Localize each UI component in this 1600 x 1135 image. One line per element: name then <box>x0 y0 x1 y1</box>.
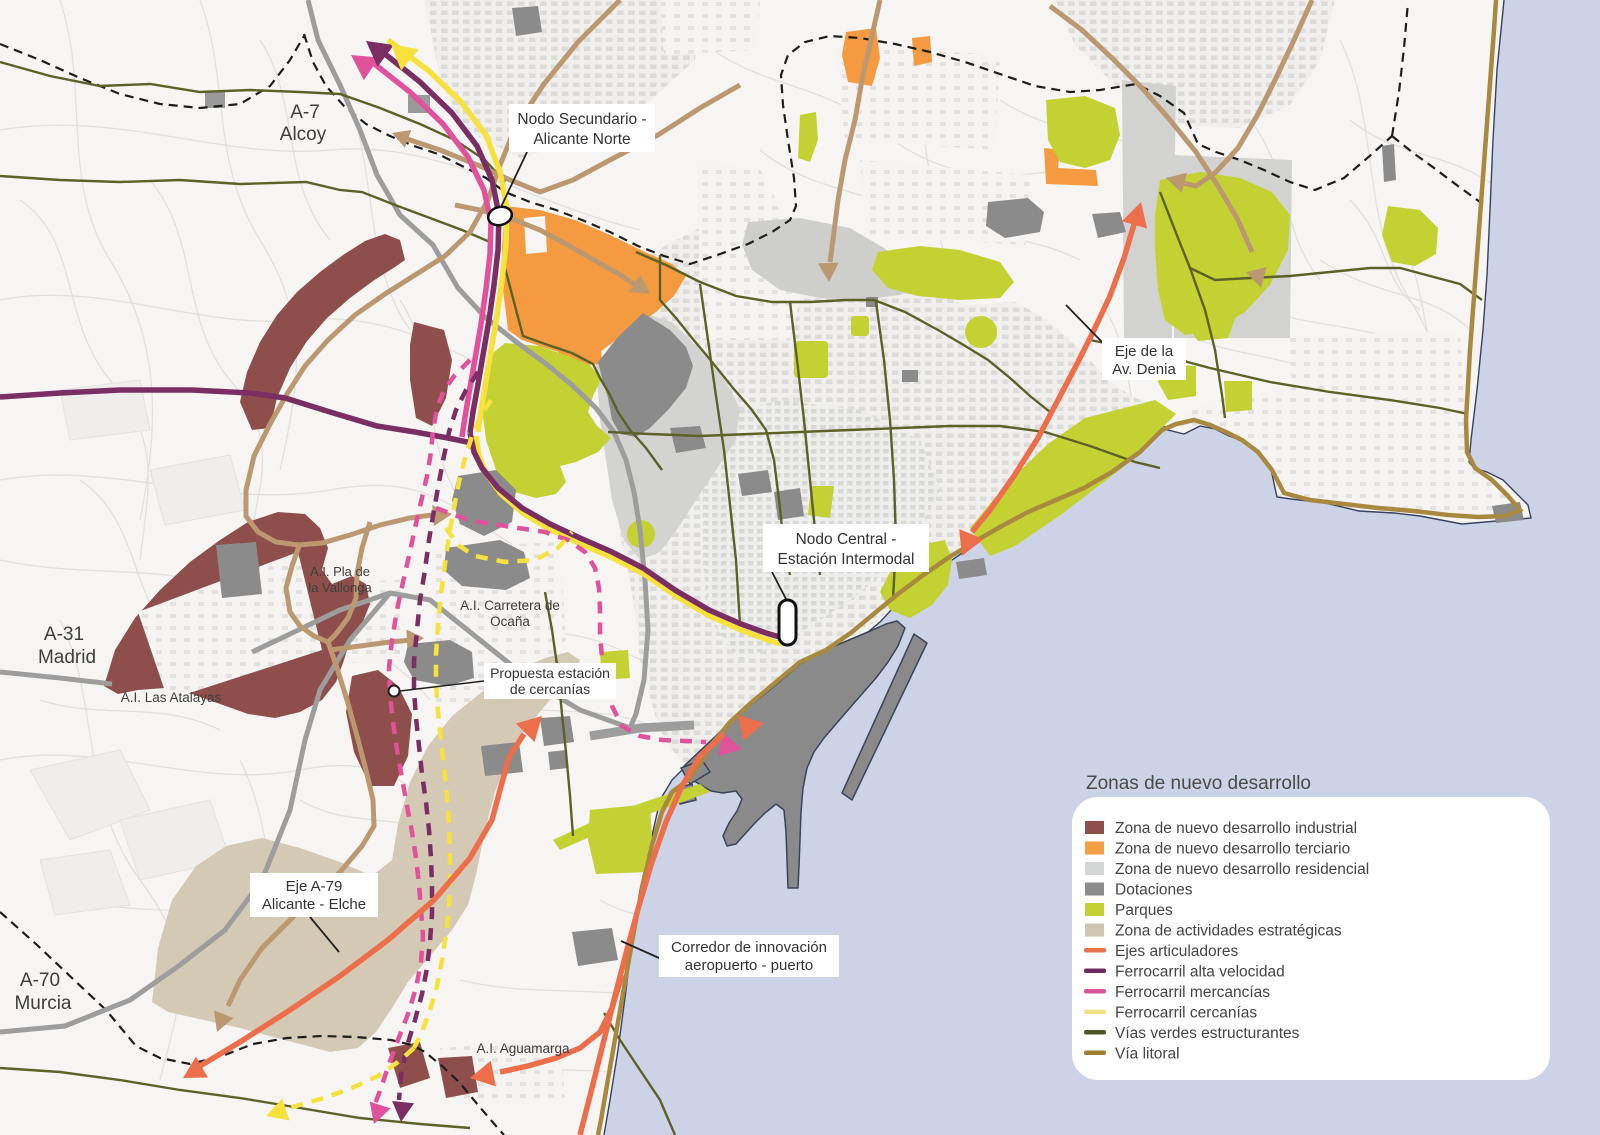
svg-text:A.I. Aguamarga: A.I. Aguamarga <box>476 1041 570 1056</box>
svg-text:Zona de actividades estratégic: Zona de actividades estratégicas <box>1115 923 1342 940</box>
svg-text:Nodo Secundario -: Nodo Secundario - <box>517 111 646 128</box>
svg-text:Ferrocarril mercancías: Ferrocarril mercancías <box>1115 984 1270 1001</box>
svg-text:Ejes articuladores: Ejes articuladores <box>1115 943 1238 960</box>
svg-text:Nodo Central -: Nodo Central - <box>796 531 897 548</box>
svg-text:la Vallonga: la Vallonga <box>308 580 372 595</box>
svg-text:Alicante - Elche: Alicante - Elche <box>262 896 366 913</box>
svg-text:Vía litoral: Vía litoral <box>1115 1046 1180 1063</box>
svg-text:Propuesta estación: Propuesta estación <box>490 665 610 681</box>
svg-text:aeropuerto - puerto: aeropuerto - puerto <box>685 957 813 974</box>
svg-text:Alicante Norte: Alicante Norte <box>533 131 630 148</box>
svg-text:Corredor de innovación: Corredor de innovación <box>671 939 827 956</box>
svg-text:Zona de nuevo desarrollo terci: Zona de nuevo desarrollo terciario <box>1115 841 1350 858</box>
svg-text:Eje A-79: Eje A-79 <box>286 878 343 895</box>
svg-text:A-7: A-7 <box>290 102 320 123</box>
svg-text:A.I. Carretera de: A.I. Carretera de <box>460 598 560 613</box>
svg-text:de cercanías: de cercanías <box>510 681 590 697</box>
svg-text:A-31: A-31 <box>44 624 84 645</box>
svg-text:Ocaña: Ocaña <box>490 614 530 629</box>
svg-text:Zona de nuevo desarrollo indus: Zona de nuevo desarrollo industrial <box>1115 820 1357 837</box>
svg-text:Vías verdes estructurantes: Vías verdes estructurantes <box>1115 1025 1300 1042</box>
svg-text:Parques: Parques <box>1115 902 1173 919</box>
svg-text:Eje de la: Eje de la <box>1115 343 1174 360</box>
svg-text:Murcia: Murcia <box>14 993 71 1014</box>
svg-text:Ferrocarril cercanías: Ferrocarril cercanías <box>1115 1005 1257 1022</box>
svg-text:Ferrocarril alta velocidad: Ferrocarril alta velocidad <box>1115 964 1285 981</box>
svg-text:Zona de nuevo desarrollo resid: Zona de nuevo desarrollo residencial <box>1115 861 1369 878</box>
svg-text:A.I. Las Atalayas: A.I. Las Atalayas <box>121 690 222 705</box>
svg-text:A-70: A-70 <box>20 970 60 991</box>
svg-text:Madrid: Madrid <box>38 647 96 668</box>
svg-text:Alcoy: Alcoy <box>280 124 327 145</box>
svg-text:Estación Intermodal: Estación Intermodal <box>778 551 915 568</box>
svg-text:A.I. Pla de: A.I. Pla de <box>310 564 370 579</box>
svg-text:Dotaciones: Dotaciones <box>1115 882 1193 899</box>
svg-text:Av. Denia: Av. Denia <box>1112 361 1176 378</box>
svg-text:Zonas de nuevo desarrollo: Zonas de nuevo desarrollo <box>1086 773 1311 794</box>
